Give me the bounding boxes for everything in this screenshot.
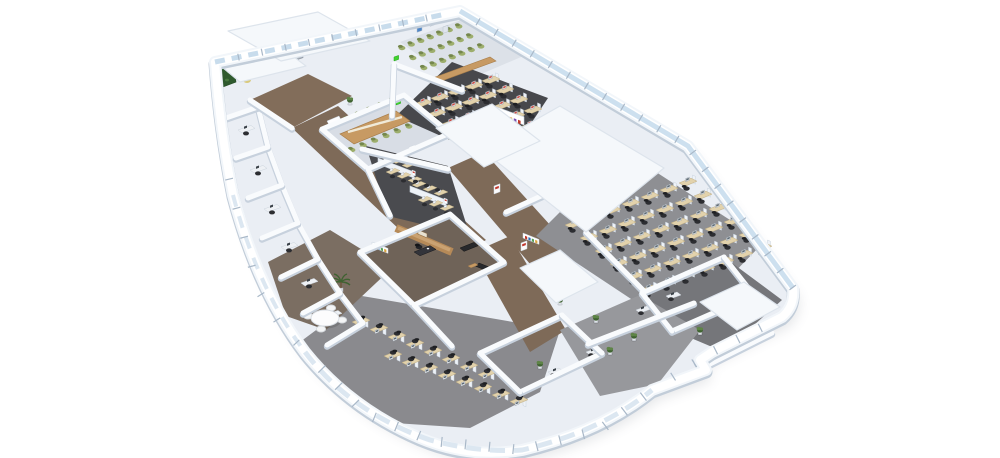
green-chair-back	[371, 138, 376, 141]
office-chair-back	[450, 353, 455, 356]
green-chair-back	[359, 142, 364, 145]
green-chair-back	[426, 34, 431, 37]
green-chair-back	[428, 48, 433, 51]
office-chair	[424, 184, 429, 187]
office-chair-back	[644, 199, 649, 202]
office-chair-back	[482, 382, 487, 385]
green-chair-back	[409, 55, 414, 58]
plant	[697, 327, 704, 336]
green-chair-back	[436, 31, 441, 34]
office-chair-back	[727, 224, 732, 227]
office-chair	[286, 248, 292, 252]
office-chair-back	[568, 227, 573, 230]
office-chair-back	[446, 369, 451, 372]
office-chair-back	[499, 93, 504, 96]
office-chair-back	[682, 185, 687, 188]
green-chair-back	[477, 43, 482, 46]
office-chair-back	[482, 99, 487, 102]
office-chair-back	[697, 198, 702, 201]
office-chair-back	[432, 346, 437, 349]
office-chair-back	[719, 264, 724, 267]
green-chair-back	[455, 23, 460, 26]
office-chair-back	[708, 231, 713, 234]
office-chair-back	[500, 389, 505, 392]
office-chair	[668, 297, 674, 301]
green-chair-back	[467, 47, 472, 50]
office-chair-back	[617, 246, 622, 249]
office-chair-back	[738, 257, 743, 260]
green-chair-back	[458, 51, 463, 54]
office-chair-back	[625, 206, 630, 209]
office-chair-back	[513, 103, 518, 106]
office-chair-back	[674, 225, 679, 228]
green-chair-back	[429, 61, 434, 64]
office-chair	[435, 188, 440, 191]
office-chair-back	[392, 350, 397, 353]
office-chair-back	[410, 356, 415, 359]
office-chair-back	[414, 338, 419, 341]
office-chair-back	[647, 272, 652, 275]
green-chair-back	[456, 37, 461, 40]
office-chair-back	[621, 226, 626, 229]
green-chair-back	[418, 51, 423, 54]
office-chair-back	[655, 232, 660, 235]
green-chair-back	[466, 33, 471, 36]
office-chair-back	[640, 219, 645, 222]
office-chair-back	[378, 323, 383, 326]
plant	[607, 347, 614, 356]
office-chair-back	[693, 218, 698, 221]
office-chair-back	[678, 205, 683, 208]
office-chair-back	[464, 376, 469, 379]
green-chair-back	[382, 133, 387, 136]
office-chair-back	[666, 265, 671, 268]
office-chair	[413, 180, 418, 183]
office-chair-back	[448, 110, 453, 113]
green-chair-back	[417, 38, 422, 41]
round-meeting-table	[311, 310, 339, 326]
plant	[631, 333, 638, 342]
office-chair-back	[712, 211, 717, 214]
office-chair-back	[685, 258, 690, 261]
office-chair-back	[659, 212, 664, 215]
green-chair-back	[439, 58, 444, 61]
office-chair-back	[485, 83, 490, 86]
office-chair-back	[465, 104, 470, 107]
office-chair	[433, 207, 438, 210]
office-chair-back	[583, 240, 588, 243]
office-chair-back	[636, 239, 641, 242]
office-chair-back	[651, 252, 656, 255]
office-chair	[401, 179, 406, 182]
office-chair	[269, 210, 275, 214]
office-chair	[306, 284, 312, 288]
desk-lamp	[427, 248, 429, 250]
office-chair-back	[434, 100, 439, 103]
green-chair-back	[420, 65, 425, 68]
office-chair-back	[742, 237, 747, 240]
office-chair-back	[428, 363, 433, 366]
office-chair	[243, 131, 249, 135]
office-chair-back	[451, 94, 456, 97]
office-chair	[422, 203, 427, 206]
office-chair-back	[527, 113, 532, 116]
office-chair-back	[468, 361, 473, 364]
office-chair-back	[689, 238, 694, 241]
office-chair-back	[663, 192, 668, 195]
office-chair-back	[704, 251, 709, 254]
office-chair-back	[632, 259, 637, 262]
wall-north-left	[392, 64, 394, 116]
executive-chair-back	[415, 244, 420, 247]
plant	[593, 315, 600, 324]
office-chair	[638, 311, 644, 315]
green-chair-back	[405, 123, 410, 126]
white-chair	[316, 326, 325, 332]
office-chair-back	[723, 244, 728, 247]
office-floorplan-3d	[0, 0, 1000, 458]
plant	[537, 361, 544, 370]
green-chair-back	[447, 41, 452, 44]
green-chair-back	[448, 54, 453, 57]
floorplan-canvas	[0, 0, 1000, 458]
green-chair-back	[398, 45, 403, 48]
office-chair	[255, 171, 261, 175]
office-chair-back	[468, 89, 473, 92]
office-chair-back	[670, 245, 675, 248]
green-chair-back	[407, 41, 412, 44]
office-chair	[390, 175, 395, 178]
office-chair-back	[602, 233, 607, 236]
plant	[347, 97, 354, 106]
office-chair-back	[396, 331, 401, 334]
green-chair-back	[437, 44, 442, 47]
green-chair-back	[394, 128, 399, 131]
